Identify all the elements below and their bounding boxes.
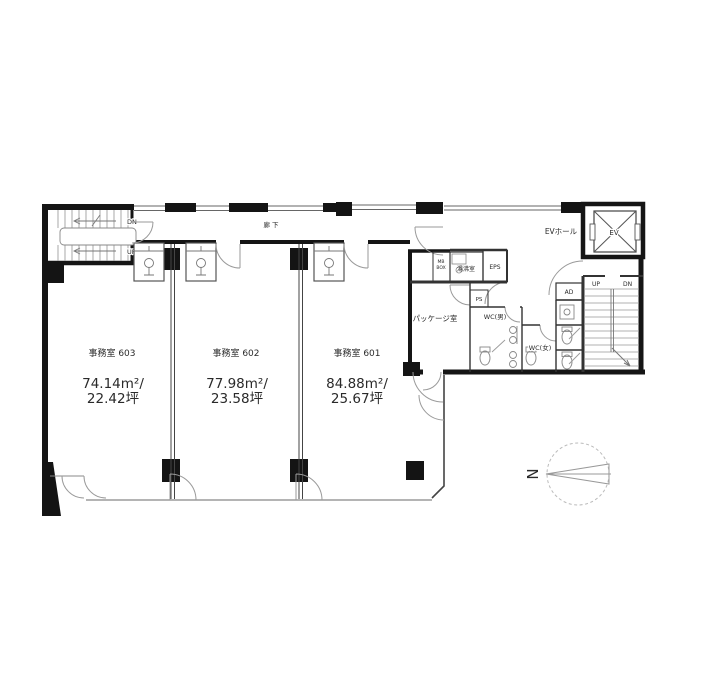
elevator: EV — [583, 204, 643, 257]
staircase-left: DN UP — [58, 210, 137, 261]
wc-women-label: WC(女) — [529, 343, 552, 352]
ev-label: EV — [609, 229, 618, 237]
stair-handrail — [60, 228, 136, 245]
floor-plan-page: DN UP 廊下 — [0, 0, 701, 700]
alcove-603 — [134, 243, 164, 281]
package-lower-door-arc — [413, 372, 443, 402]
stair-right-up-label: UP — [592, 281, 600, 288]
room-601-area-m2: 84.88m²/ — [326, 376, 388, 392]
wc-men-door-arc — [505, 307, 520, 322]
eps-label: EPS — [489, 264, 500, 271]
urinal-icon — [510, 337, 517, 344]
room-603: 事務室 603 74.14m²/ 22.42坪 — [82, 347, 144, 407]
stair-divider — [611, 289, 614, 352]
compass-north-label: N — [524, 468, 542, 479]
corridor-label: 廊下 — [264, 220, 281, 229]
package-room-label: パッケージ室 — [413, 313, 458, 323]
room-602-door-arc — [216, 244, 240, 268]
room-602: 事務室 602 77.98m²/ 23.58坪 — [206, 347, 268, 407]
slop-sink-icon — [560, 305, 574, 319]
urinal-icon — [510, 327, 517, 334]
package-room-door-arc — [450, 285, 470, 305]
balcony-door-arc-2 — [84, 476, 106, 498]
sink-icon — [510, 352, 517, 359]
stair-direction-arrow — [612, 348, 630, 366]
alcove-602 — [186, 243, 216, 281]
package-lower-door-arc-2 — [423, 372, 441, 390]
floor-plan-drawing: DN UP 廊下 — [0, 0, 701, 700]
room-labels: 事務室 603 74.14m²/ 22.42坪 事務室 602 77.98m²/… — [82, 347, 388, 407]
wc-men-label: WC(男) — [484, 313, 507, 321]
alcove-601 — [314, 243, 344, 281]
room-602-area-m2: 77.98m²/ — [206, 376, 268, 392]
room-601-name: 事務室 601 — [333, 347, 380, 359]
room-601-side-door-arc — [419, 395, 444, 420]
ad-label: AD — [565, 289, 574, 296]
room-602-name: 事務室 602 — [212, 347, 259, 359]
stair-right-dn-label: DN — [623, 281, 632, 288]
mb-box-label-2: BOX — [436, 265, 445, 271]
mb-box-label-1: MB — [438, 259, 445, 265]
room-602-area-tsubo: 23.58坪 — [211, 391, 263, 407]
ps-label: PS — [476, 297, 483, 303]
toilet-icon — [526, 351, 536, 365]
room-601-door-arc — [344, 244, 368, 268]
service-core-labels: パッケージ室 湯沸室 EPS MB BOX PS AD WC(男) WC(女) … — [413, 227, 578, 352]
room-divider-walls — [171, 244, 303, 499]
room-601: 事務室 601 84.88m²/ 25.67坪 — [326, 347, 388, 407]
balcony-door-arc-1 — [62, 476, 84, 498]
staircase-right: UP DN — [585, 281, 639, 366]
room-603-name: 事務室 603 — [88, 347, 135, 359]
room-603-area-m2: 74.14m²/ — [82, 376, 144, 392]
room-603-area-tsubo: 22.42坪 — [87, 391, 139, 407]
room-601-area-tsubo: 25.67坪 — [331, 391, 383, 407]
wc-women-door-arc — [540, 325, 556, 341]
toilet-icon — [480, 351, 490, 365]
tapered-wall-wedge — [42, 462, 61, 516]
compass-icon: N — [524, 443, 611, 505]
sink-icon — [510, 361, 517, 368]
ev-hall-label: EVホール — [545, 227, 578, 236]
hot-water-room-label: 湯沸室 — [457, 265, 475, 273]
